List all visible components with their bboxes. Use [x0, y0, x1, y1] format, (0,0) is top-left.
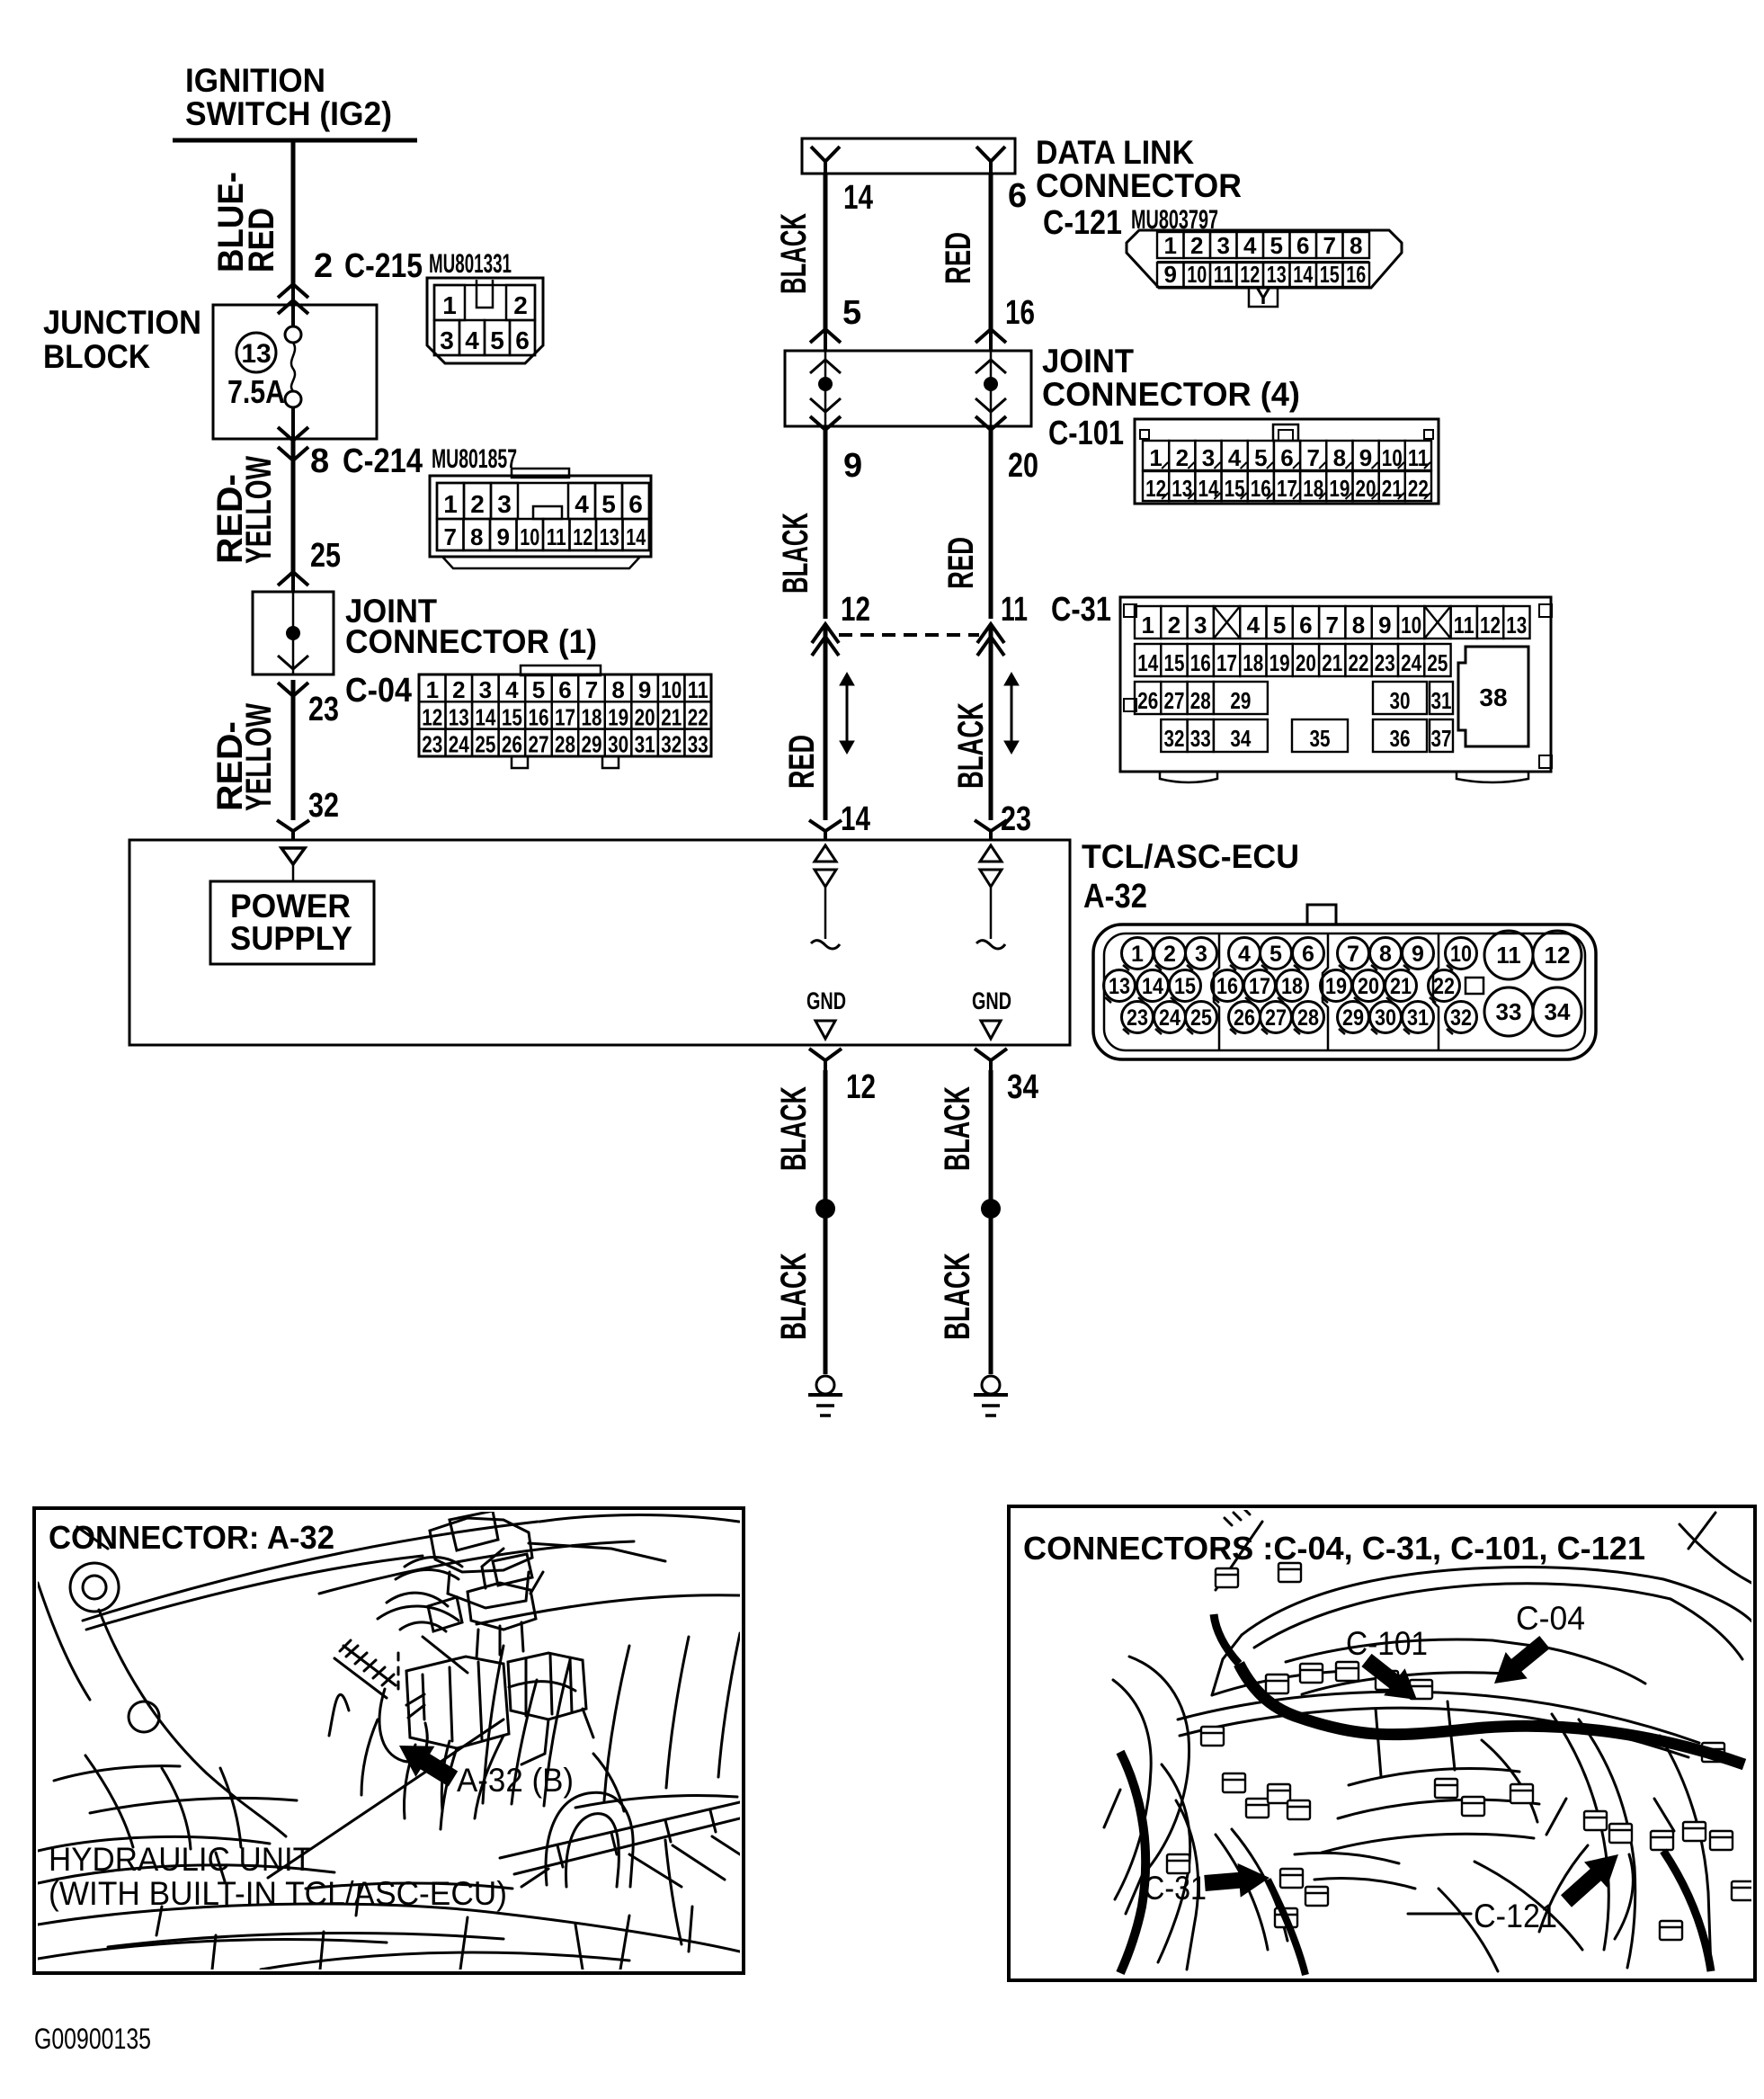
svg-text:10: 10 — [1450, 942, 1472, 967]
svg-text:18: 18 — [582, 703, 602, 730]
svg-text:12: 12 — [1480, 612, 1501, 639]
svg-text:9: 9 — [1412, 942, 1424, 967]
svg-text:22: 22 — [688, 703, 708, 730]
svg-text:19: 19 — [1270, 649, 1290, 676]
svg-text:16: 16 — [1005, 294, 1035, 332]
svg-text:34: 34 — [1007, 1068, 1038, 1106]
svg-text:7: 7 — [1306, 444, 1319, 471]
svg-text:13: 13 — [449, 703, 469, 730]
svg-text:9: 9 — [638, 676, 651, 703]
svg-text:5: 5 — [842, 294, 861, 332]
svg-text:BLACK: BLACK — [776, 513, 815, 594]
svg-text:13: 13 — [1267, 261, 1287, 288]
svg-text:3: 3 — [1216, 232, 1229, 259]
svg-text:14: 14 — [1293, 261, 1313, 288]
svg-text:3: 3 — [1202, 444, 1215, 471]
svg-text:11: 11 — [547, 523, 566, 550]
svg-text:11: 11 — [1214, 261, 1234, 288]
svg-text:1: 1 — [1141, 612, 1154, 639]
svg-text:5: 5 — [532, 676, 545, 703]
svg-text:29: 29 — [1230, 687, 1251, 714]
svg-text:25: 25 — [310, 537, 341, 575]
svg-text:YELLOW: YELLOW — [239, 703, 279, 811]
svg-text:23: 23 — [1375, 649, 1395, 676]
svg-text:12: 12 — [841, 591, 870, 629]
svg-text:30: 30 — [608, 731, 628, 758]
svg-text:6: 6 — [1296, 232, 1309, 259]
svg-text:12: 12 — [846, 1068, 876, 1106]
svg-text:7: 7 — [1323, 232, 1335, 259]
svg-text:BLACK: BLACK — [938, 1086, 977, 1171]
svg-text:8: 8 — [470, 523, 483, 550]
svg-text:Y: Y — [1256, 285, 1270, 309]
svg-text:C-215: C-215 — [344, 247, 423, 285]
svg-text:11: 11 — [1001, 591, 1028, 629]
svg-text:15: 15 — [1174, 974, 1196, 999]
svg-text:2: 2 — [470, 490, 485, 518]
svg-text:22: 22 — [1349, 649, 1369, 676]
svg-text:BLACK: BLACK — [951, 702, 991, 789]
svg-text:21: 21 — [1322, 649, 1342, 676]
svg-text:RED: RED — [242, 208, 281, 272]
svg-text:RED: RED — [941, 537, 981, 589]
svg-text:3: 3 — [479, 676, 492, 703]
svg-text:4: 4 — [1228, 444, 1242, 471]
svg-text:25: 25 — [1190, 1005, 1212, 1031]
svg-text:A-32: A-32 — [1083, 878, 1147, 916]
svg-text:28: 28 — [1297, 1005, 1319, 1031]
svg-text:31: 31 — [635, 731, 655, 758]
svg-text:BLACK: BLACK — [938, 1253, 977, 1340]
svg-text:12: 12 — [1240, 261, 1260, 288]
svg-text:14: 14 — [1137, 649, 1158, 676]
svg-text:C-31: C-31 — [1144, 1870, 1207, 1907]
svg-text:4: 4 — [465, 326, 479, 354]
svg-text:23: 23 — [422, 731, 442, 758]
svg-text:24: 24 — [1401, 649, 1421, 676]
svg-text:5: 5 — [490, 326, 504, 354]
svg-text:8: 8 — [1333, 444, 1346, 471]
svg-text:C-101: C-101 — [1346, 1625, 1428, 1662]
svg-text:18: 18 — [1281, 974, 1303, 999]
svg-text:22: 22 — [1433, 974, 1455, 999]
svg-text:4: 4 — [1243, 232, 1257, 259]
svg-text:MU801857: MU801857 — [432, 444, 517, 474]
svg-text:4: 4 — [1238, 942, 1251, 967]
svg-text:GND: GND — [806, 987, 846, 1014]
svg-text:G00900135: G00900135 — [34, 2023, 151, 2055]
svg-text:2: 2 — [513, 291, 528, 319]
svg-text:21: 21 — [661, 703, 682, 730]
svg-text:BLACK: BLACK — [774, 1253, 814, 1340]
svg-text:34: 34 — [1230, 725, 1251, 752]
svg-text:26: 26 — [502, 731, 522, 758]
svg-text:3: 3 — [440, 326, 454, 354]
svg-text:11: 11 — [1454, 612, 1474, 639]
svg-text:27: 27 — [529, 731, 549, 758]
svg-text:16: 16 — [1346, 261, 1366, 288]
svg-text:24: 24 — [449, 731, 469, 758]
svg-text:(WITH BUILT-IN TCL/ASC-ECU): (WITH BUILT-IN TCL/ASC-ECU) — [49, 1875, 507, 1912]
svg-text:JUNCTION: JUNCTION — [43, 304, 201, 341]
svg-text:SWITCH (IG2): SWITCH (IG2) — [185, 95, 392, 132]
svg-text:20: 20 — [1358, 974, 1379, 999]
svg-text:IGNITION: IGNITION — [185, 62, 325, 99]
svg-text:29: 29 — [582, 731, 602, 758]
svg-text:3: 3 — [497, 490, 512, 518]
svg-text:27: 27 — [1164, 687, 1185, 714]
svg-text:10: 10 — [661, 676, 682, 703]
svg-text:JOINT: JOINT — [1042, 343, 1134, 380]
svg-text:32: 32 — [1164, 725, 1185, 752]
svg-text:4: 4 — [1247, 612, 1261, 639]
svg-text:5: 5 — [1273, 612, 1286, 639]
svg-text:6: 6 — [1302, 942, 1314, 967]
svg-text:13: 13 — [1109, 974, 1130, 999]
svg-text:7: 7 — [585, 676, 598, 703]
svg-text:C-121: C-121 — [1474, 1898, 1557, 1934]
svg-text:2: 2 — [1163, 942, 1176, 967]
svg-text:31: 31 — [1431, 687, 1452, 714]
svg-text:35: 35 — [1310, 725, 1331, 752]
svg-text:26: 26 — [1137, 687, 1158, 714]
svg-text:28: 28 — [1190, 687, 1211, 714]
svg-text:2: 2 — [1168, 612, 1180, 639]
svg-text:17: 17 — [1216, 649, 1237, 676]
svg-text:16: 16 — [1190, 649, 1211, 676]
svg-text:15: 15 — [502, 703, 522, 730]
svg-text:6: 6 — [558, 676, 571, 703]
svg-text:33: 33 — [688, 731, 708, 758]
svg-text:25: 25 — [1427, 649, 1448, 676]
svg-text:12: 12 — [573, 523, 592, 550]
svg-text:7: 7 — [1325, 612, 1338, 639]
svg-text:8: 8 — [1379, 942, 1392, 967]
svg-text:6: 6 — [628, 490, 643, 518]
svg-text:RED: RED — [782, 735, 822, 789]
svg-text:2: 2 — [314, 247, 333, 285]
svg-text:C-214: C-214 — [343, 442, 423, 480]
svg-text:12: 12 — [422, 703, 442, 730]
svg-text:C-04: C-04 — [345, 672, 412, 710]
svg-text:14: 14 — [1142, 974, 1163, 999]
svg-text:31: 31 — [1407, 1005, 1429, 1031]
svg-text:7.5A: 7.5A — [227, 373, 285, 410]
svg-text:14: 14 — [841, 800, 870, 838]
svg-text:8: 8 — [310, 442, 329, 480]
svg-text:20: 20 — [1296, 649, 1316, 676]
svg-text:19: 19 — [608, 703, 628, 730]
svg-text:29: 29 — [1342, 1005, 1364, 1031]
svg-text:36: 36 — [1390, 725, 1411, 752]
svg-text:CONNECTOR (1): CONNECTOR (1) — [345, 623, 597, 660]
svg-text:A-32 (B): A-32 (B) — [457, 1762, 574, 1799]
svg-text:21: 21 — [1390, 974, 1412, 999]
svg-text:3: 3 — [1194, 612, 1207, 639]
svg-text:10: 10 — [1401, 612, 1421, 639]
svg-text:BLOCK: BLOCK — [43, 338, 150, 375]
svg-text:5: 5 — [1270, 942, 1282, 967]
svg-text:2: 2 — [452, 676, 465, 703]
svg-text:7: 7 — [1347, 942, 1359, 967]
svg-text:C-101: C-101 — [1048, 415, 1124, 452]
svg-text:5: 5 — [1270, 232, 1282, 259]
svg-text:23: 23 — [1127, 1005, 1148, 1031]
svg-text:6: 6 — [1008, 177, 1027, 215]
svg-text:12: 12 — [1545, 942, 1571, 969]
svg-text:14: 14 — [843, 179, 873, 217]
svg-text:9: 9 — [1163, 261, 1176, 288]
svg-text:GND: GND — [972, 987, 1011, 1014]
svg-text:8: 8 — [611, 676, 624, 703]
svg-text:2: 2 — [1190, 232, 1203, 259]
svg-text:C-04: C-04 — [1516, 1600, 1585, 1637]
svg-text:3: 3 — [1195, 942, 1207, 967]
svg-text:4: 4 — [575, 490, 589, 518]
svg-text:38: 38 — [1479, 683, 1507, 711]
svg-text:15: 15 — [1164, 649, 1185, 676]
svg-text:DATA LINK: DATA LINK — [1036, 134, 1194, 171]
svg-text:9: 9 — [843, 447, 862, 485]
svg-text:SUPPLY: SUPPLY — [230, 920, 352, 957]
svg-text:5: 5 — [601, 490, 616, 518]
svg-text:37: 37 — [1431, 725, 1452, 752]
svg-text:9: 9 — [496, 523, 509, 550]
svg-text:23: 23 — [308, 691, 339, 728]
svg-text:28: 28 — [555, 731, 575, 758]
svg-text:14: 14 — [475, 703, 495, 730]
svg-text:1: 1 — [1163, 232, 1176, 259]
svg-text:RED: RED — [939, 232, 978, 284]
svg-text:13: 13 — [241, 339, 271, 369]
svg-text:MU801331: MU801331 — [429, 249, 512, 279]
svg-text:33: 33 — [1496, 998, 1522, 1025]
svg-text:32: 32 — [661, 731, 682, 758]
svg-text:4: 4 — [505, 676, 519, 703]
svg-text:6: 6 — [1280, 444, 1293, 471]
svg-text:11: 11 — [688, 676, 708, 703]
svg-text:TCL/ASC-ECU: TCL/ASC-ECU — [1082, 838, 1299, 875]
svg-text:13: 13 — [600, 523, 619, 550]
svg-text:25: 25 — [475, 731, 495, 758]
svg-text:17: 17 — [1249, 974, 1270, 999]
svg-text:32: 32 — [1450, 1005, 1472, 1031]
svg-text:1: 1 — [426, 676, 439, 703]
svg-text:16: 16 — [1216, 974, 1238, 999]
svg-text:11: 11 — [1496, 942, 1521, 969]
svg-text:20: 20 — [635, 703, 655, 730]
svg-text:BLACK: BLACK — [774, 1086, 814, 1171]
svg-text:16: 16 — [529, 703, 549, 730]
svg-text:6: 6 — [515, 326, 530, 354]
svg-text:1: 1 — [443, 490, 458, 518]
svg-text:2: 2 — [1176, 444, 1189, 471]
svg-text:9: 9 — [1359, 444, 1372, 471]
svg-text:C-121: C-121 — [1043, 204, 1122, 242]
svg-text:HYDRAULIC UNIT: HYDRAULIC UNIT — [49, 1841, 312, 1878]
svg-text:19: 19 — [1325, 974, 1347, 999]
svg-text:32: 32 — [308, 787, 339, 825]
svg-text:20: 20 — [1008, 447, 1038, 485]
svg-text:5: 5 — [1254, 444, 1267, 471]
svg-text:CONNECTOR (4): CONNECTOR (4) — [1042, 376, 1300, 413]
svg-text:8: 8 — [1350, 232, 1362, 259]
svg-text:18: 18 — [1243, 649, 1263, 676]
svg-text:7: 7 — [443, 523, 456, 550]
svg-text:30: 30 — [1390, 687, 1411, 714]
svg-text:33: 33 — [1190, 725, 1211, 752]
svg-text:14: 14 — [626, 523, 646, 550]
svg-text:C-31: C-31 — [1051, 591, 1111, 629]
svg-text:BLACK: BLACK — [774, 213, 814, 294]
svg-text:15: 15 — [1320, 261, 1340, 288]
svg-text:1: 1 — [1131, 942, 1144, 967]
svg-text:YELLOW: YELLOW — [239, 456, 279, 564]
svg-text:POWER: POWER — [230, 888, 351, 924]
svg-text:9: 9 — [1378, 612, 1391, 639]
svg-text:10: 10 — [1187, 261, 1207, 288]
svg-text:1: 1 — [1149, 444, 1162, 471]
svg-text:27: 27 — [1265, 1005, 1287, 1031]
svg-text:13: 13 — [1506, 612, 1527, 639]
svg-text:1: 1 — [442, 291, 457, 319]
svg-text:24: 24 — [1159, 1005, 1180, 1031]
svg-text:26: 26 — [1234, 1005, 1255, 1031]
svg-text:6: 6 — [1299, 612, 1312, 639]
svg-text:30: 30 — [1375, 1005, 1396, 1031]
svg-text:10: 10 — [520, 523, 539, 550]
svg-text:CONNECTORS :C-04, C-31, C-101,: CONNECTORS :C-04, C-31, C-101, C-121 — [1023, 1530, 1645, 1567]
svg-text:8: 8 — [1352, 612, 1365, 639]
svg-text:CONNECTOR: CONNECTOR — [1036, 167, 1242, 204]
svg-text:34: 34 — [1545, 998, 1571, 1025]
svg-text:17: 17 — [555, 703, 575, 730]
